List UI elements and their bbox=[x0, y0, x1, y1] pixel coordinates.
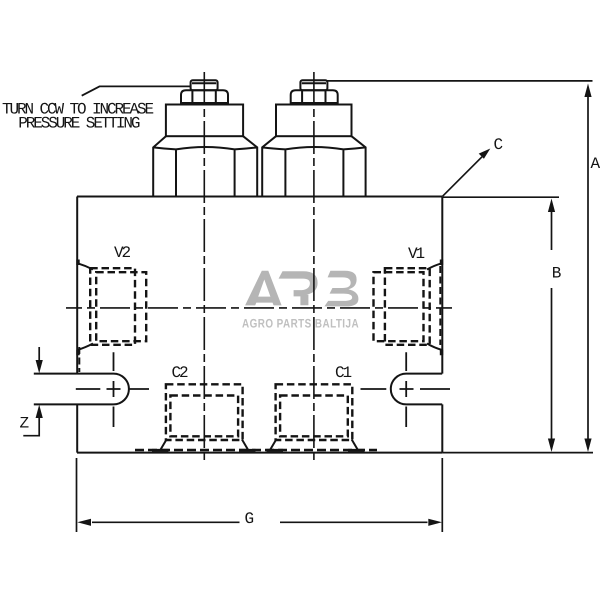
svg-text:C2: C2 bbox=[172, 364, 189, 382]
svg-text:B: B bbox=[552, 265, 561, 283]
svg-text:Z: Z bbox=[20, 415, 30, 433]
svg-text:PRESSURE SETTING: PRESSURE SETTING bbox=[18, 114, 140, 132]
svg-text:V1: V1 bbox=[408, 245, 425, 263]
svg-text:G: G bbox=[245, 510, 254, 528]
svg-text:AGRO PARTS BALTIJA: AGRO PARTS BALTIJA bbox=[242, 316, 359, 330]
svg-text:A: A bbox=[591, 155, 600, 173]
svg-text:C: C bbox=[494, 136, 503, 154]
svg-text:C1: C1 bbox=[335, 364, 352, 382]
svg-text:V2: V2 bbox=[114, 244, 131, 262]
